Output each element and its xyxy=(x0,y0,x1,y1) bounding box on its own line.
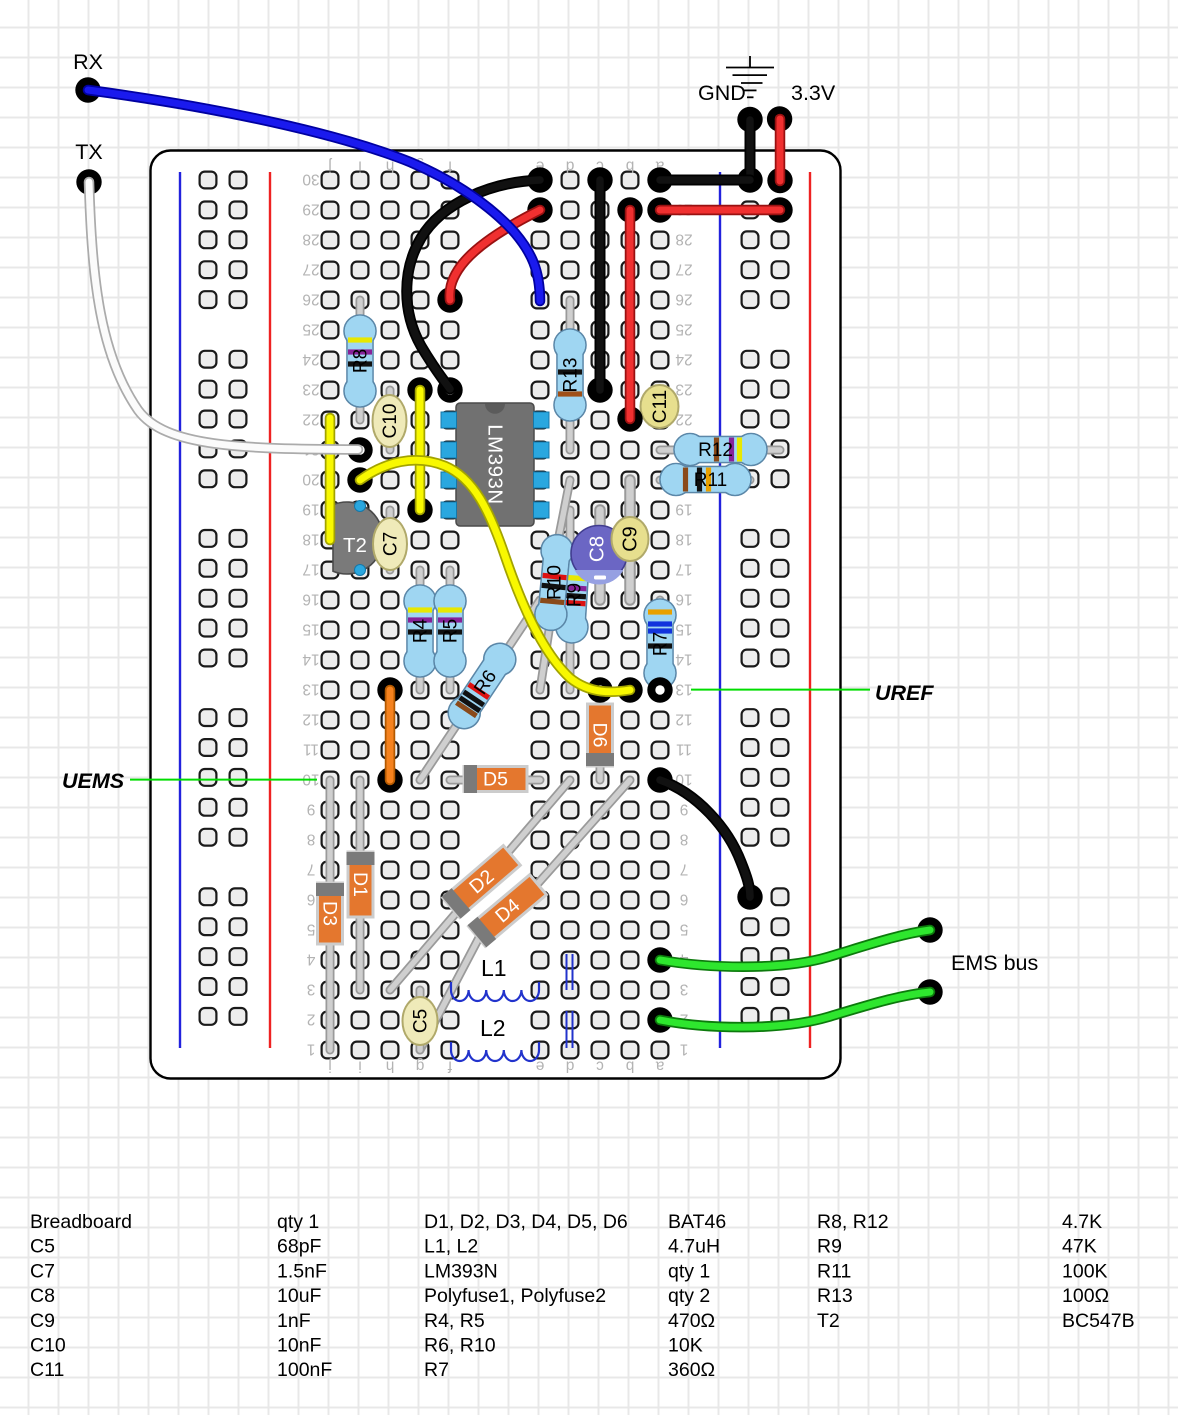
svg-text:17: 17 xyxy=(302,561,319,578)
svg-text:h: h xyxy=(386,1058,395,1075)
svg-text:24: 24 xyxy=(302,351,320,368)
svg-text:R11: R11 xyxy=(694,470,727,491)
svg-text:12: 12 xyxy=(675,711,692,728)
svg-text:4.7K: 4.7K xyxy=(1062,1211,1102,1233)
svg-text:25: 25 xyxy=(302,321,319,338)
svg-text:j: j xyxy=(328,1058,332,1075)
svg-text:10K: 10K xyxy=(668,1335,703,1357)
svg-text:C9: C9 xyxy=(620,526,642,552)
svg-text:2: 2 xyxy=(307,1011,316,1028)
svg-text:EMS bus: EMS bus xyxy=(951,951,1038,975)
svg-text:13: 13 xyxy=(302,681,319,698)
svg-text:25: 25 xyxy=(675,321,692,338)
svg-text:C10: C10 xyxy=(30,1335,66,1357)
svg-text:11: 11 xyxy=(676,741,692,758)
svg-text:19: 19 xyxy=(302,501,319,518)
svg-text:19: 19 xyxy=(675,501,692,518)
svg-text:C7: C7 xyxy=(30,1260,55,1282)
svg-text:qty 2: qty 2 xyxy=(668,1285,710,1307)
svg-text:C7: C7 xyxy=(381,532,402,556)
svg-text:C8: C8 xyxy=(586,536,609,562)
svg-text:R10: R10 xyxy=(545,565,566,600)
svg-text:8: 8 xyxy=(680,831,689,848)
svg-text:18: 18 xyxy=(302,531,319,548)
svg-text:D1: D1 xyxy=(349,872,371,897)
svg-text:6: 6 xyxy=(307,891,316,908)
svg-text:RX: RX xyxy=(73,50,103,74)
svg-text:e: e xyxy=(536,1058,545,1075)
svg-text:Breadboard: Breadboard xyxy=(30,1211,132,1233)
svg-text:16: 16 xyxy=(302,591,319,608)
svg-text:3: 3 xyxy=(680,981,689,998)
svg-text:LM393N: LM393N xyxy=(484,424,507,505)
svg-text:470Ω: 470Ω xyxy=(668,1310,715,1332)
svg-text:3.3V: 3.3V xyxy=(791,81,836,105)
svg-text:BC547B: BC547B xyxy=(1062,1310,1135,1332)
svg-text:7: 7 xyxy=(307,861,316,878)
svg-text:14: 14 xyxy=(675,651,693,668)
svg-text:7: 7 xyxy=(680,861,689,878)
svg-text:24: 24 xyxy=(675,351,693,368)
svg-text:C9: C9 xyxy=(30,1310,55,1332)
svg-text:4.7uH: 4.7uH xyxy=(668,1236,720,1258)
svg-text:R8, R12: R8, R12 xyxy=(817,1211,889,1233)
svg-text:b: b xyxy=(626,1058,635,1075)
svg-text:18: 18 xyxy=(675,531,692,548)
svg-text:R4, R5: R4, R5 xyxy=(424,1310,485,1332)
svg-text:1: 1 xyxy=(307,1041,316,1058)
svg-text:qty 1: qty 1 xyxy=(668,1260,710,1282)
svg-text:UEMS: UEMS xyxy=(62,769,125,793)
svg-text:R8: R8 xyxy=(351,349,372,373)
svg-text:20: 20 xyxy=(302,471,320,488)
svg-text:26: 26 xyxy=(302,291,319,308)
svg-text:L2: L2 xyxy=(480,1015,506,1041)
svg-text:10uF: 10uF xyxy=(277,1285,322,1307)
svg-text:Polyfuse1, Polyfuse2: Polyfuse1, Polyfuse2 xyxy=(424,1285,606,1307)
svg-text:D1, D2, D3, D4, D5, D6: D1, D2, D3, D4, D5, D6 xyxy=(424,1211,628,1233)
svg-text:C5: C5 xyxy=(411,1009,432,1033)
svg-text:23: 23 xyxy=(302,381,319,398)
svg-text:j: j xyxy=(328,158,332,175)
svg-text:R13: R13 xyxy=(817,1285,853,1307)
svg-text:C8: C8 xyxy=(30,1285,55,1307)
svg-text:UREF: UREF xyxy=(875,681,934,705)
svg-text:R7: R7 xyxy=(651,632,672,656)
svg-text:3: 3 xyxy=(307,981,316,998)
svg-text:L1: L1 xyxy=(481,955,507,981)
svg-text:L1, L2: L1, L2 xyxy=(424,1236,478,1258)
svg-text:8: 8 xyxy=(307,831,316,848)
svg-text:D5: D5 xyxy=(483,769,508,791)
svg-text:28: 28 xyxy=(675,231,692,248)
svg-text:12: 12 xyxy=(302,711,319,728)
svg-text:27: 27 xyxy=(302,261,319,278)
svg-text:29: 29 xyxy=(302,201,319,218)
svg-text:100nF: 100nF xyxy=(277,1359,332,1381)
svg-text:22: 22 xyxy=(302,411,319,428)
svg-text:47K: 47K xyxy=(1062,1236,1097,1258)
svg-text:360Ω: 360Ω xyxy=(668,1359,715,1381)
svg-text:qty 1: qty 1 xyxy=(277,1211,319,1233)
svg-text:g: g xyxy=(416,1058,425,1075)
svg-text:4: 4 xyxy=(306,951,315,968)
svg-text:17: 17 xyxy=(675,561,692,578)
svg-text:T2: T2 xyxy=(817,1310,840,1332)
svg-text:5: 5 xyxy=(307,921,316,938)
svg-text:R11: R11 xyxy=(817,1260,851,1282)
svg-text:a: a xyxy=(655,1058,664,1075)
svg-text:R4: R4 xyxy=(411,618,432,643)
svg-text:b: b xyxy=(626,158,635,175)
svg-text:14: 14 xyxy=(302,651,320,668)
svg-text:9: 9 xyxy=(307,801,316,818)
svg-text:d: d xyxy=(566,1058,575,1075)
svg-text:GND: GND xyxy=(698,81,746,105)
svg-text:D3: D3 xyxy=(319,901,341,926)
svg-text:R9: R9 xyxy=(817,1236,842,1258)
svg-text:1.5nF: 1.5nF xyxy=(277,1260,327,1282)
svg-text:R6, R10: R6, R10 xyxy=(424,1335,496,1357)
svg-text:i: i xyxy=(358,158,361,175)
svg-text:23: 23 xyxy=(675,381,692,398)
svg-text:26: 26 xyxy=(675,291,692,308)
svg-text:R12: R12 xyxy=(698,440,733,461)
svg-text:68pF: 68pF xyxy=(277,1236,322,1258)
svg-text:f: f xyxy=(447,158,452,175)
svg-text:9: 9 xyxy=(680,801,689,818)
svg-text:f: f xyxy=(447,1058,452,1075)
svg-text:28: 28 xyxy=(302,231,319,248)
svg-text:10nF: 10nF xyxy=(277,1335,322,1357)
svg-text:D6: D6 xyxy=(589,723,611,748)
svg-text:BAT46: BAT46 xyxy=(668,1211,726,1233)
svg-text:R5: R5 xyxy=(441,619,462,643)
svg-text:16: 16 xyxy=(675,591,692,608)
svg-text:100K: 100K xyxy=(1062,1260,1108,1282)
svg-text:LM393N: LM393N xyxy=(424,1260,498,1282)
svg-text:1: 1 xyxy=(680,1041,689,1058)
svg-text:6: 6 xyxy=(680,891,689,908)
svg-text:13: 13 xyxy=(675,681,692,698)
svg-text:100Ω: 100Ω xyxy=(1062,1285,1109,1307)
svg-text:5: 5 xyxy=(680,921,689,938)
svg-text:T2: T2 xyxy=(343,534,367,557)
svg-text:1nF: 1nF xyxy=(277,1310,311,1332)
svg-text:15: 15 xyxy=(302,621,319,638)
svg-text:11: 11 xyxy=(303,741,319,758)
svg-text:C10: C10 xyxy=(380,404,401,439)
svg-text:15: 15 xyxy=(675,621,692,638)
svg-text:TX: TX xyxy=(75,140,102,164)
svg-text:27: 27 xyxy=(675,261,692,278)
svg-text:C11: C11 xyxy=(650,390,671,423)
svg-text:C11: C11 xyxy=(30,1359,64,1381)
svg-text:i: i xyxy=(358,1058,361,1075)
svg-text:C5: C5 xyxy=(30,1236,55,1258)
svg-text:c: c xyxy=(596,1058,604,1075)
svg-text:d: d xyxy=(566,158,575,175)
svg-text:R7: R7 xyxy=(424,1359,449,1381)
svg-text:R13: R13 xyxy=(561,358,582,393)
svg-text:R9: R9 xyxy=(565,583,586,607)
svg-text:30: 30 xyxy=(302,171,320,188)
